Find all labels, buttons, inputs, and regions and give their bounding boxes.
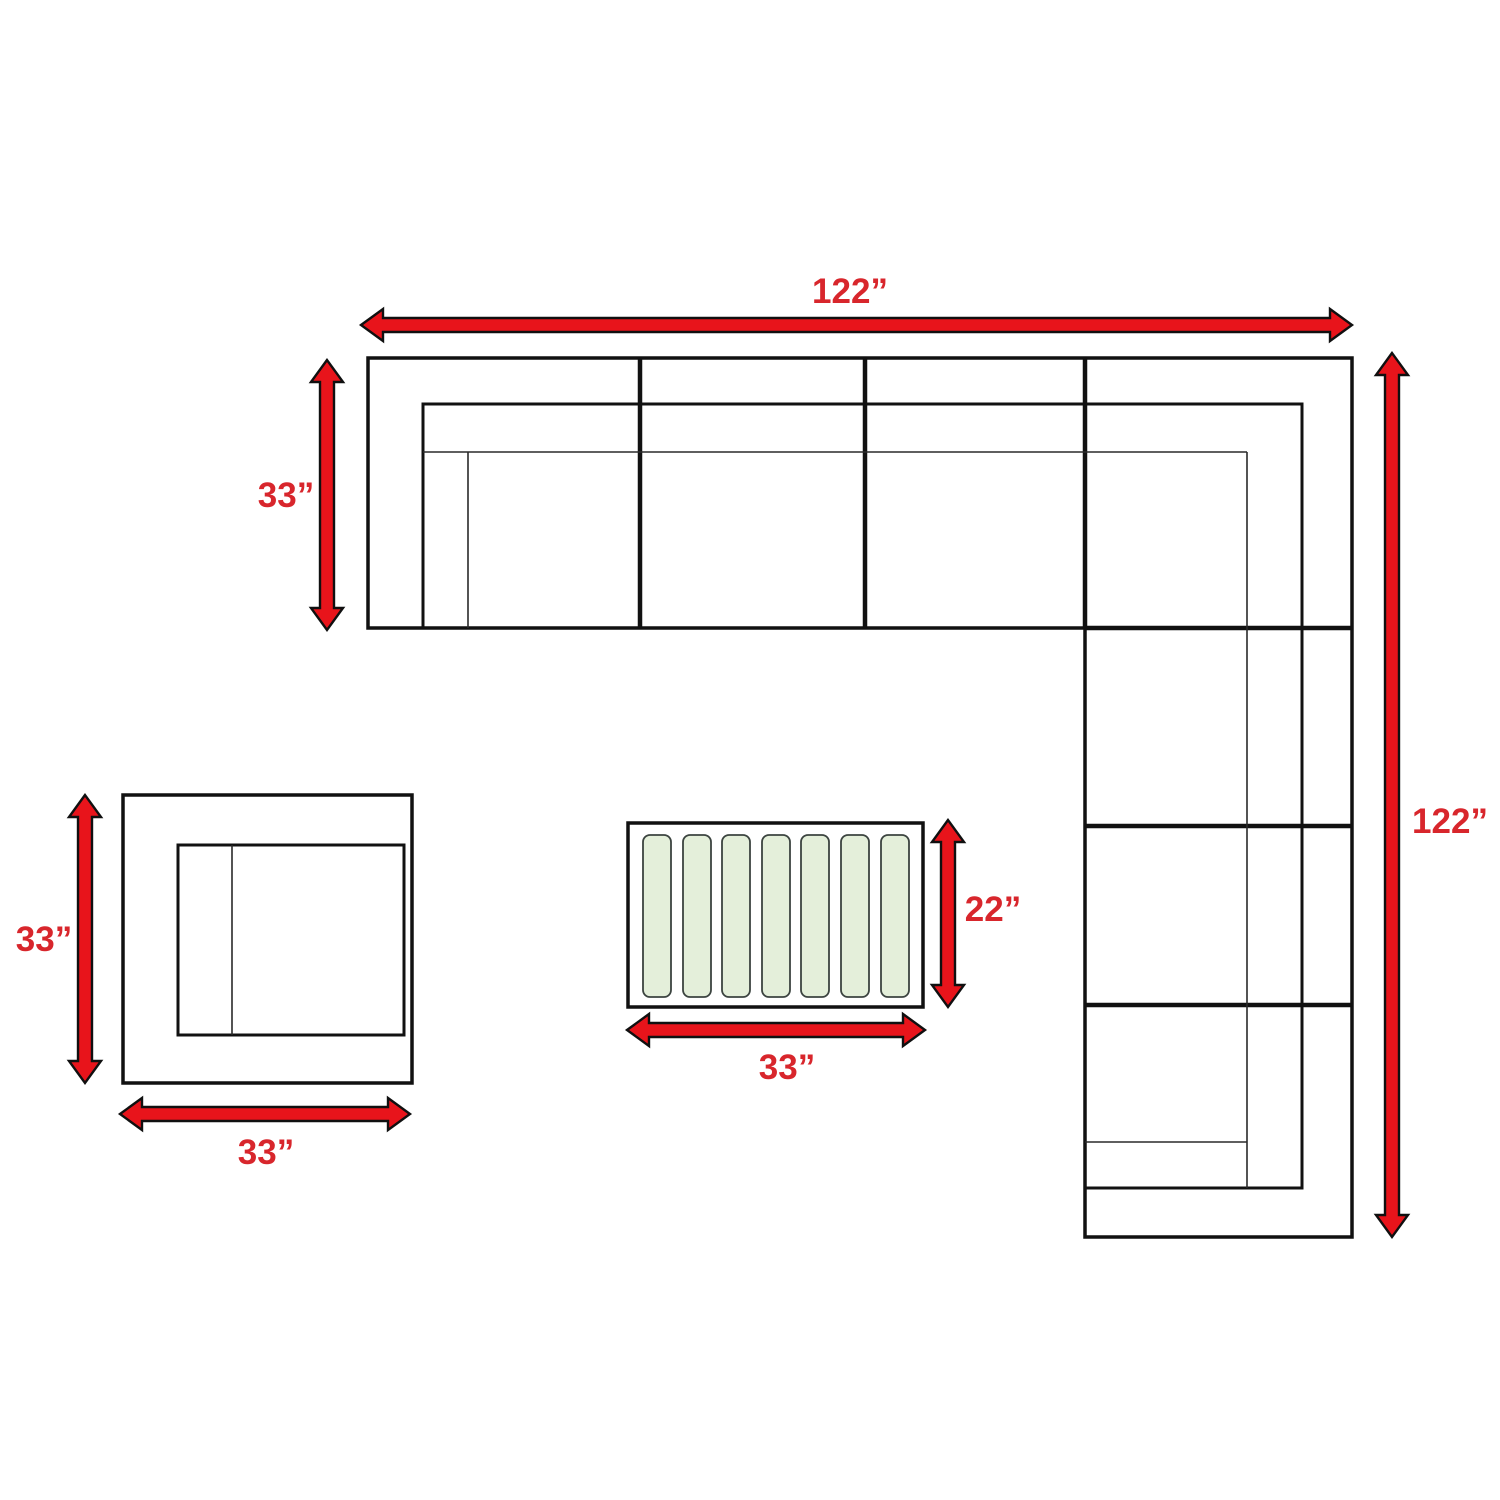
coffee-table bbox=[628, 823, 923, 1007]
table-depth-arrow bbox=[932, 820, 964, 1007]
furniture-dimension-diagram: 122” 33” 122” 33” 33” 22” 33” bbox=[0, 0, 1500, 1500]
sofa-depth-label: 33” bbox=[258, 476, 314, 515]
table-width-arrow bbox=[627, 1014, 925, 1046]
chair-depth-arrow bbox=[69, 795, 101, 1083]
sofa-backrest-inner-line bbox=[423, 404, 1302, 1188]
chair-width-arrow bbox=[120, 1098, 410, 1130]
table-slat bbox=[762, 835, 790, 997]
chair-depth-label: 33” bbox=[16, 920, 72, 959]
table-slat bbox=[881, 835, 909, 997]
armchair bbox=[123, 795, 412, 1083]
sofa-length-label: 122” bbox=[1412, 802, 1488, 841]
sofa-width-dimension: 122” bbox=[361, 272, 1352, 341]
table-slat bbox=[722, 835, 750, 997]
table-slat bbox=[683, 835, 711, 997]
chair-outer-outline bbox=[123, 795, 412, 1083]
table-depth-label: 22” bbox=[965, 890, 1021, 929]
sofa-length-arrow bbox=[1376, 353, 1408, 1237]
sofa-width-arrow bbox=[361, 309, 1352, 341]
chair-backrest-inner-line bbox=[178, 845, 404, 1035]
chair-depth-dimension: 33” bbox=[16, 795, 101, 1083]
sofa-length-dimension: 122” bbox=[1376, 353, 1488, 1237]
sofa-depth-dimension: 33” bbox=[258, 360, 343, 630]
sofa-outer-outline bbox=[368, 358, 1352, 1237]
table-slat bbox=[841, 835, 869, 997]
chair-width-dimension: 33” bbox=[120, 1098, 410, 1172]
table-width-dimension: 33” bbox=[627, 1014, 925, 1087]
table-width-label: 33” bbox=[759, 1048, 815, 1087]
sofa-depth-arrow bbox=[311, 360, 343, 630]
table-slat bbox=[801, 835, 829, 997]
sofa-width-label: 122” bbox=[812, 272, 888, 311]
table-slat bbox=[643, 835, 671, 997]
table-depth-dimension: 22” bbox=[932, 820, 1021, 1007]
chair-width-label: 33” bbox=[238, 1133, 294, 1172]
sectional-sofa bbox=[368, 358, 1352, 1237]
